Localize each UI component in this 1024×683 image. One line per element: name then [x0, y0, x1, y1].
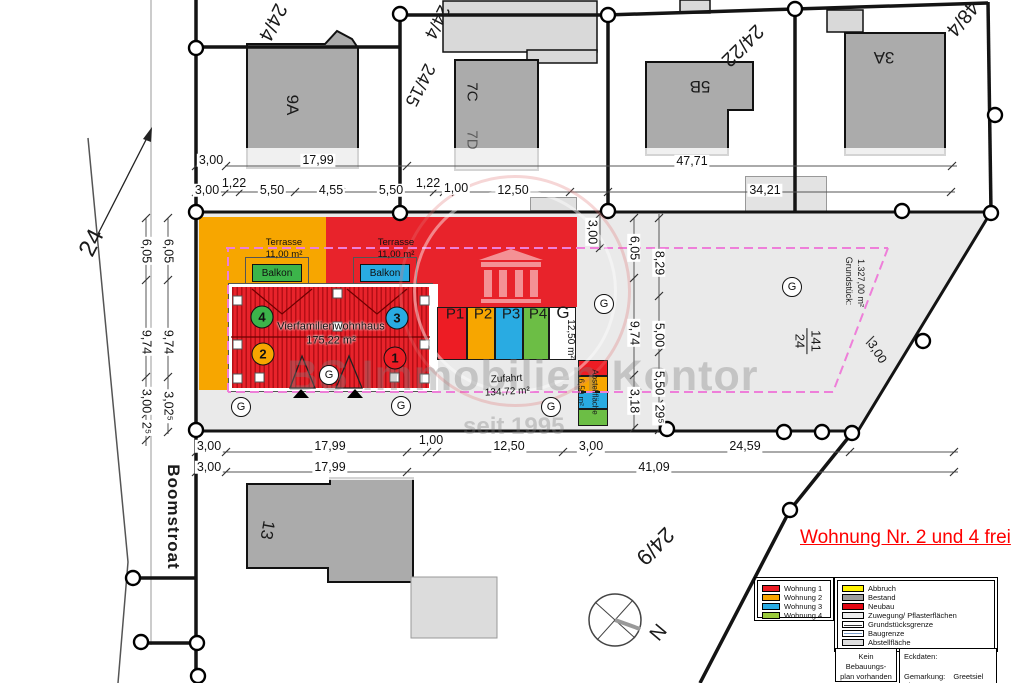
legend-label: Neubau	[868, 603, 894, 611]
building-3a-shape	[845, 33, 945, 155]
parcel-label-24-9: 24/9	[631, 522, 680, 571]
building-label-7d: 7D	[464, 130, 481, 149]
dim-label: 9,74	[628, 319, 641, 347]
parcel-label-24: 24	[73, 225, 110, 262]
legend-swatch	[842, 585, 864, 592]
unit-circle-4: 4	[251, 306, 274, 329]
dim-label: 6,05	[140, 237, 153, 265]
legend-row: Neubau	[842, 602, 990, 611]
gemarkung-value: Greetsiel	[953, 672, 983, 681]
legend-swatch	[762, 612, 780, 619]
dim-label: 3,00	[586, 218, 599, 246]
legend-row: Wohnung 2	[762, 593, 826, 602]
dim-label: 6,05	[628, 234, 641, 262]
terrace-left-label: Terrasse 11,00 m²	[266, 237, 303, 261]
house-name-text: Vierfamilienwohnhaus	[277, 320, 384, 332]
unit-number: 1	[391, 351, 398, 366]
vacancy-annotation: Wohnung Nr. 2 und 4 frei	[800, 527, 1011, 549]
parking-depth-label: 12,50 m²	[565, 317, 575, 360]
garage-letter: G	[397, 400, 406, 412]
legend-row: Grundstücksgrenze	[842, 620, 990, 629]
parcel-label-141-24: 141 24	[792, 328, 823, 354]
dim-label: 3,00	[140, 387, 153, 415]
parcel-label-24-15: 24/15	[400, 60, 439, 110]
dim-label: 41,09	[636, 461, 671, 474]
dim-label: 29⁵	[653, 402, 666, 425]
unit-circle-3: 3	[386, 307, 409, 330]
legend-label: Abbruch	[868, 585, 896, 593]
building-aux-shape	[527, 50, 597, 63]
balcony-right: Balkon	[360, 264, 410, 282]
parcel-label-24-4b: 24/4	[420, 2, 455, 43]
parking-label-p1: P1	[446, 306, 464, 323]
dim-label: 47,71	[674, 155, 709, 168]
balcony-right-label: Balkon	[370, 268, 401, 279]
dim-label: 17,99	[312, 440, 347, 453]
grundstueck-label: Grundstück:	[844, 257, 854, 306]
legend-swatch	[762, 585, 780, 592]
dim-label: 9,74	[140, 328, 153, 356]
terrace-label-text: Terrasse	[378, 237, 414, 248]
note-text: plan vorhanden	[840, 672, 892, 681]
legend-swatch	[842, 621, 864, 628]
legend-swatch	[762, 594, 780, 601]
dim-label: 1,00	[442, 182, 470, 195]
dim-label: 3,00	[577, 440, 605, 453]
dim-label: 3,00	[197, 154, 225, 167]
legend-swatch	[842, 594, 864, 601]
legend-row: Abbruch	[842, 584, 990, 593]
terrace-area-text: 11,00 m²	[378, 249, 415, 260]
dim-label: 3,18	[628, 387, 641, 415]
legend-row: Wohnung 4	[762, 611, 826, 620]
parcel-label-48-4: 48/4	[941, 0, 984, 40]
legend-row: Bestand	[842, 593, 990, 602]
fraction-top: 141	[807, 328, 823, 354]
garage-letter: G	[325, 369, 334, 381]
garage-circle: G	[391, 396, 411, 416]
dim-label: 1,00	[417, 434, 445, 447]
parking-label-p2: P2	[474, 306, 492, 323]
dim-label: 1,22	[220, 177, 248, 190]
building-label-5b: 5B	[690, 76, 711, 96]
street-name-label: Boomstroat	[163, 464, 183, 569]
legend-units-box: Wohnung 1 Wohnung 2 Wohnung 3 Wohnung 4	[757, 580, 831, 618]
building-aux-shape	[680, 0, 710, 13]
parking-label-p3: P3	[502, 306, 520, 323]
fraction-bottom: 24	[792, 328, 807, 354]
legend-label: Wohnung 2	[784, 594, 822, 602]
terrace-right-label: Terrasse 11,00 m²	[378, 237, 415, 261]
garage-letter: G	[788, 281, 797, 293]
legend-swatch	[842, 612, 864, 619]
legend-row: Abstellfläche	[842, 638, 990, 647]
building-aux-shape	[827, 10, 863, 32]
dim-label: 3,00	[195, 461, 223, 474]
north-compass	[589, 594, 641, 646]
dim-label: 5,00	[653, 321, 666, 349]
dim-label: 2⁵	[140, 420, 153, 436]
gemarkung-label: Gemarkung:	[904, 672, 945, 681]
dim-label: 12,50	[495, 184, 530, 197]
legend-label: Wohnung 4	[784, 612, 822, 620]
garage-circle: G	[594, 294, 614, 314]
pavement-shape	[411, 577, 497, 638]
unit-circle-1: 1	[384, 347, 407, 370]
legend-label: Abstellfläche	[868, 639, 911, 647]
garage-letter: G	[237, 401, 246, 413]
dim-label: 8,29	[653, 249, 666, 277]
garage-circle: G	[541, 397, 561, 417]
house-label: Vierfamilienwohnhaus 175,22 m²	[277, 320, 384, 348]
dim-label: 12,50	[491, 440, 526, 453]
dim-label: 5,50	[653, 369, 666, 397]
grundstueck-area-label: 1.327,00 m²	[856, 259, 866, 307]
legend-row: Wohnung 3	[762, 602, 826, 611]
legend-row: Baugrenze	[842, 629, 990, 638]
dim-label: 17,99	[300, 154, 335, 167]
legend-label: Baugrenze	[868, 630, 904, 638]
dim-label: 5,50	[258, 184, 286, 197]
building-label-13: 13	[256, 519, 279, 541]
legend-row: Wohnung 1	[762, 584, 826, 593]
garage-letter: G	[547, 401, 556, 413]
balcony-left-label: Balkon	[262, 268, 293, 279]
legend-swatch	[842, 630, 864, 637]
unit-number: 3	[393, 311, 400, 326]
legend-label: Zuwegung/ Pflasterflächen	[868, 612, 957, 620]
note-text: Kein Bebauungs-	[846, 652, 886, 671]
parking-label-g: G	[556, 303, 569, 323]
zufahrt-area-text: 134,72 m²	[485, 385, 531, 398]
building-label-9a: 9A	[282, 95, 302, 116]
garage-circle: G	[231, 397, 251, 417]
garage-circle: G	[782, 277, 802, 297]
legend-label: Wohnung 1	[784, 585, 822, 593]
dim-label: 3,00	[195, 440, 223, 453]
legend-label: Grundstücksgrenze	[868, 621, 933, 629]
legend-label: Bestand	[868, 594, 896, 602]
terrace-area-text: 11,00 m²	[266, 249, 303, 260]
dim-label: 17,99	[312, 461, 347, 474]
abstell-label: Abstellfläche	[591, 369, 600, 414]
balcony-left: Balkon	[252, 264, 302, 282]
terrace-label-text: Terrasse	[266, 237, 302, 248]
parcel-label-24-4: 24/4	[253, 0, 291, 45]
legend-swatch	[762, 603, 780, 610]
dim-label: 34,21	[747, 184, 782, 197]
eckdaten-title: Eckdaten:	[904, 652, 937, 661]
parking-label-p4: P4	[529, 306, 547, 323]
legend-row: Zuwegung/ Pflasterflächen	[842, 611, 990, 620]
unit-circle-2: 2	[252, 343, 275, 366]
eckdaten-box: Eckdaten: Gemarkung: Greetsiel Flur: 10	[899, 648, 997, 683]
dim-label: 5,50	[377, 184, 405, 197]
bebauungsplan-note-box: Kein Bebauungs- plan vorhanden	[835, 648, 897, 682]
legend-label: Wohnung 3	[784, 603, 822, 611]
site-plan: Balkon Balkon	[0, 0, 1024, 683]
building-label-7c: 7C	[464, 82, 481, 101]
dim-label: 9,74	[162, 328, 175, 356]
garage-circle: G	[319, 365, 339, 385]
legend-swatch	[842, 639, 864, 646]
d im-label: 6,05	[162, 237, 175, 265]
dim-label: 4,55	[317, 184, 345, 197]
parcel-leader-arrow	[98, 127, 152, 234]
unit-number: 2	[259, 347, 266, 362]
zufahrt-text: Zufahrt	[491, 373, 523, 386]
dim-label: 3,00	[193, 184, 221, 197]
house-area-text: 175,22 m²	[306, 334, 356, 346]
parcel-label-24-22: 24/22	[716, 19, 768, 71]
north-letter: N	[646, 620, 673, 646]
building-label-3a: 3A	[874, 47, 895, 67]
zufahrt-label: Zufahrt 134,72 m²	[484, 372, 530, 399]
unit-number: 4	[258, 310, 265, 325]
legend-items-box: Abbruch Bestand Neubau Zuwegung/ Pflaste…	[837, 580, 995, 649]
dim-label: 1,22	[414, 177, 442, 190]
building-aux-shape	[443, 1, 597, 52]
pavement-area	[530, 197, 577, 211]
dim-label: 3,02⁵	[162, 389, 175, 423]
abstell-area-label: 16,50 m²	[577, 374, 586, 406]
dim-label: 24,59	[727, 440, 762, 453]
legend-swatch	[842, 603, 864, 610]
garage-letter: G	[600, 298, 609, 310]
